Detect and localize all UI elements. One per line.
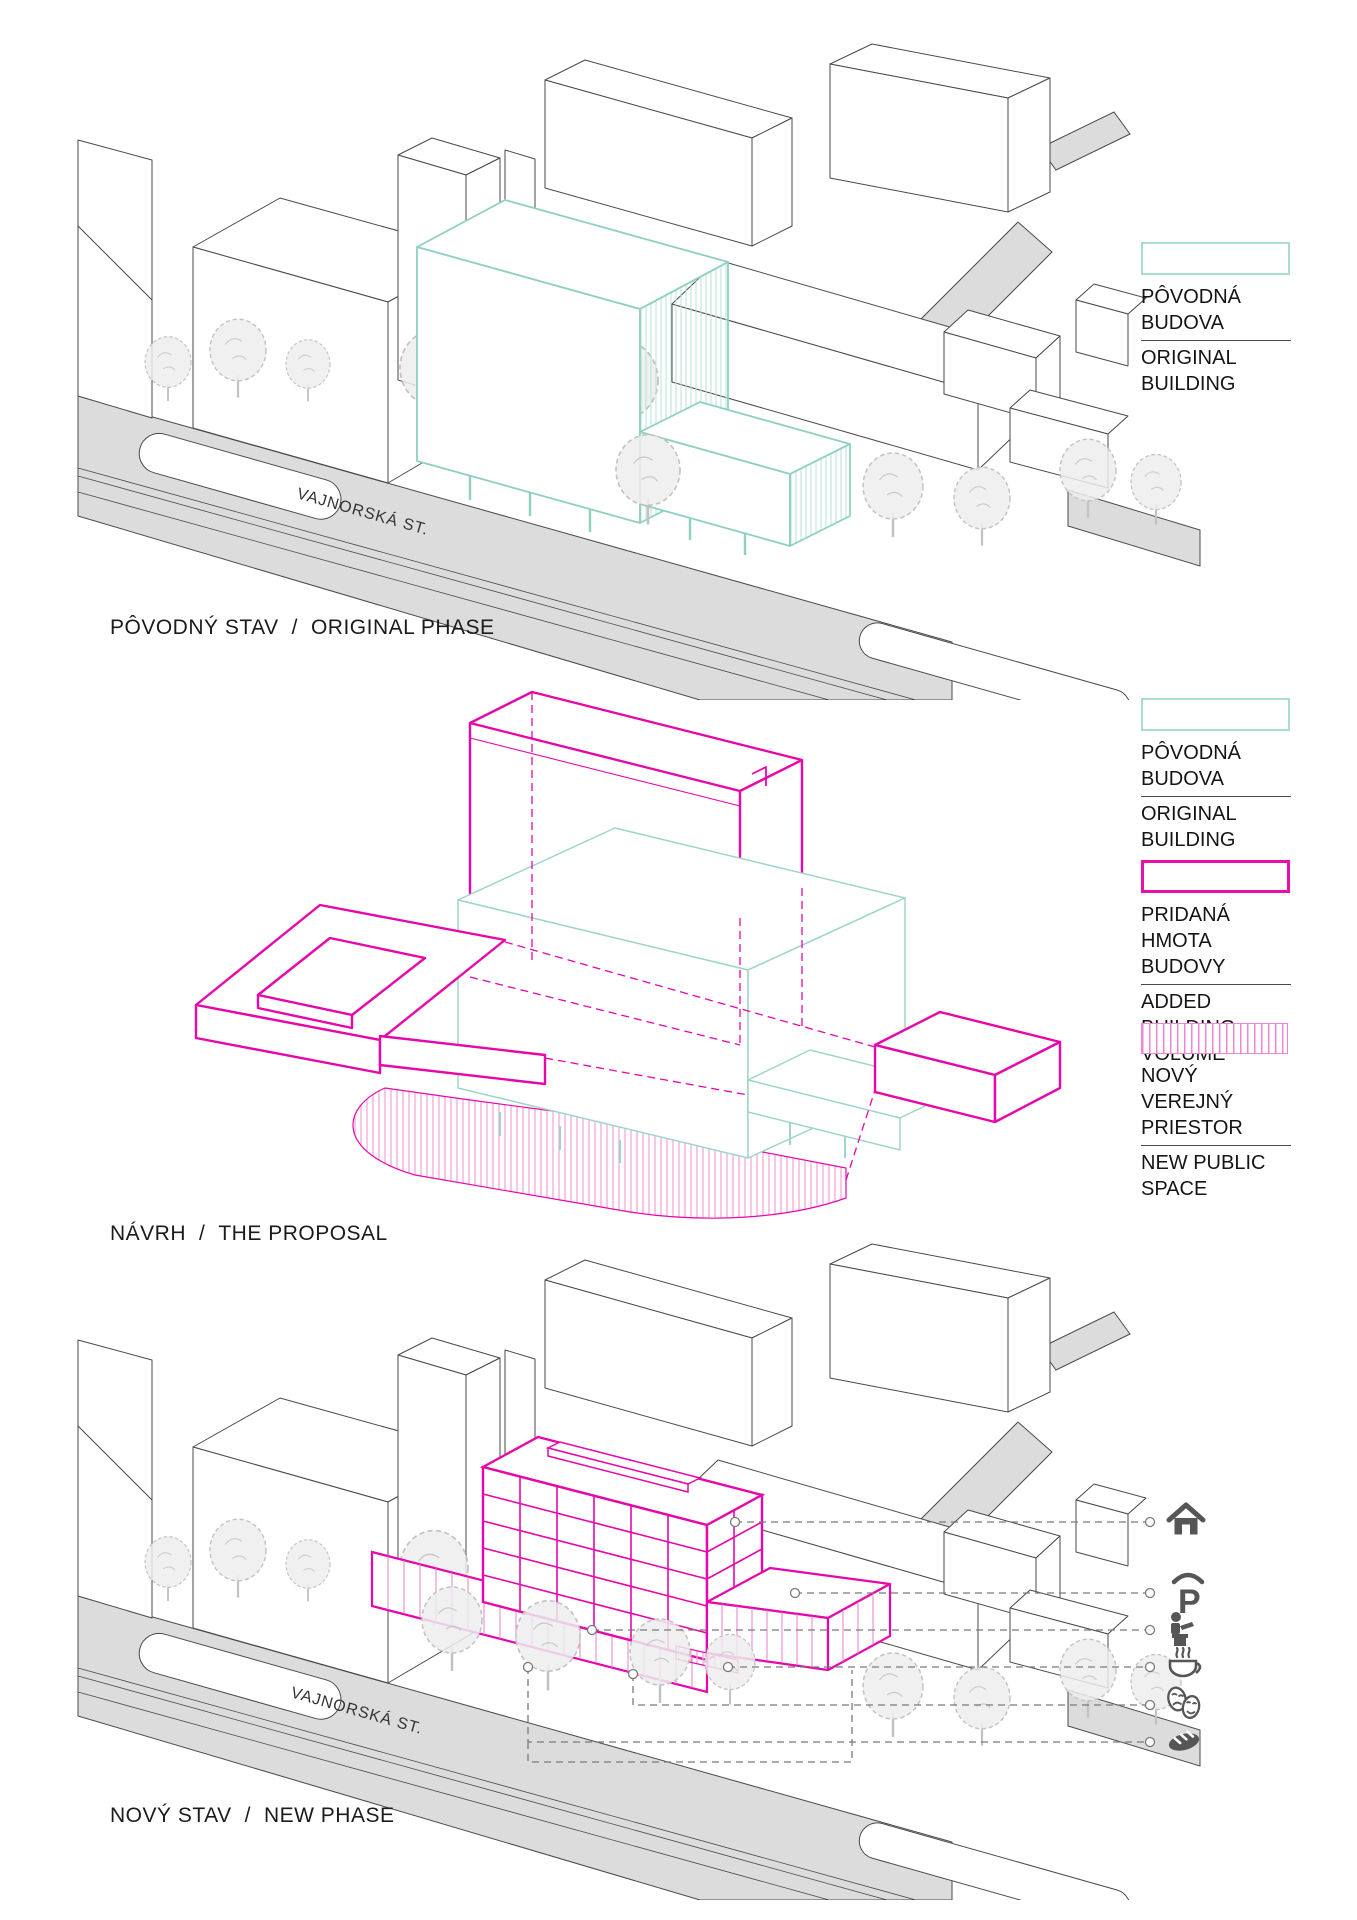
new-phase-drawing: VAJNORSKÁ ST.: [0, 1200, 1357, 1900]
svg-text:P: P: [1178, 1583, 1201, 1621]
program-icons: P: [1166, 1505, 1203, 1754]
title-new-phase: NOVÝ STAV/NEW PHASE: [110, 1804, 394, 1828]
legend-text: BUILDING: [1141, 371, 1311, 397]
legend-text: NEW PUBLIC: [1141, 1150, 1311, 1176]
legend-text: PRIDANÁ HMOTA: [1141, 902, 1291, 954]
legend-text: PÔVODNÁ: [1141, 284, 1291, 310]
legend-text: ORIGINAL: [1141, 345, 1311, 371]
legend-text: NOVÝ VEREJNÝ: [1141, 1063, 1291, 1115]
diagram-sheet: VAJNORSKÁ ST.: [0, 0, 1357, 1920]
title-original-phase: PÔVODNÝ STAV/ORIGINAL PHASE: [110, 616, 495, 640]
legend-original-building: PÔVODNÁ BUDOVA ORIGINAL BUILDING: [1141, 242, 1311, 397]
home-icon: [1169, 1505, 1203, 1535]
cafe-icon: [1170, 1648, 1200, 1676]
legend-text: BUDOVA: [1141, 310, 1291, 336]
theater-masks-icon: [1166, 1686, 1201, 1720]
legend-original-building-2: PÔVODNÁ BUDOVA ORIGINAL BUILDING: [1141, 698, 1311, 853]
legend-text: SPACE: [1141, 1176, 1311, 1202]
legend-text: PÔVODNÁ: [1141, 740, 1291, 766]
legend-public-space: NOVÝ VEREJNÝ PRIESTOR NEW PUBLIC SPACE: [1141, 1023, 1311, 1202]
title-proposal: NÁVRH/THE PROPOSAL: [110, 1222, 388, 1246]
legend-text: BUDOVY: [1141, 954, 1291, 980]
legend-swatch-public-space: [1141, 1023, 1288, 1054]
legend-swatch-added: [1141, 860, 1290, 893]
legend-swatch-original: [1141, 698, 1290, 731]
legend-text: PRIESTOR: [1141, 1115, 1291, 1141]
legend-text: BUDOVA: [1141, 766, 1291, 792]
legend-text: BUILDING: [1141, 827, 1311, 853]
legend-text: ORIGINAL: [1141, 801, 1311, 827]
legend-swatch-original: [1141, 242, 1290, 275]
